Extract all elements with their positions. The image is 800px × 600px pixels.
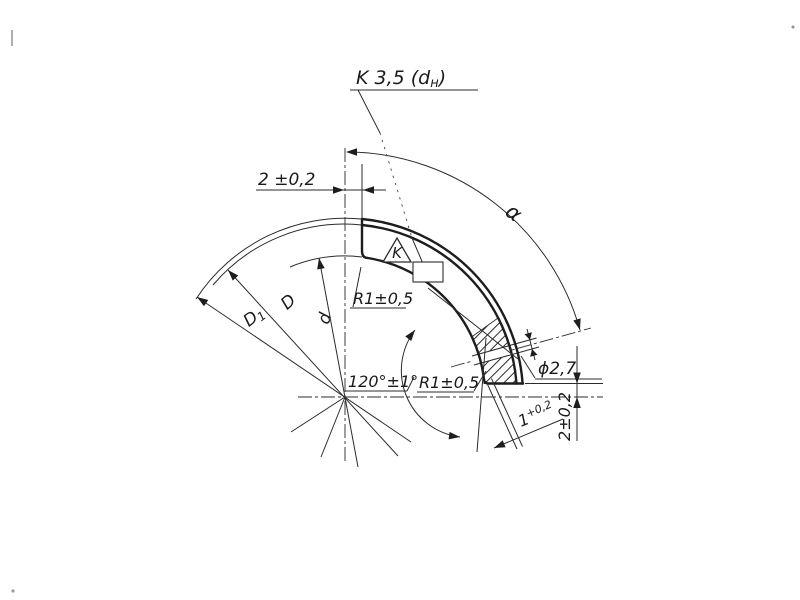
inner-surface-extension-arc xyxy=(290,256,362,267)
coating-leader xyxy=(358,90,380,133)
dimension-arrowhead xyxy=(449,432,460,440)
dimension-arrowhead xyxy=(346,148,357,156)
dimension-arrowhead xyxy=(197,297,208,306)
dimension-arrowhead xyxy=(573,397,581,408)
label-radius-bottom: R1±0,5 xyxy=(419,373,479,392)
label-gap-top: 2 ±0,2 xyxy=(258,170,316,190)
dimension-arrowhead xyxy=(405,330,415,341)
angle-side-line xyxy=(428,288,518,359)
dimension-arrowhead xyxy=(317,258,324,269)
drawing-sheet: K K 3,5 (dн) 2 ±0,2 α D D1 d R1±0,5 120°… xyxy=(0,0,800,600)
scan-mark xyxy=(11,589,14,592)
center-construction-tail-2 xyxy=(321,397,345,457)
label-alpha: α xyxy=(501,199,527,227)
dimension-line-D1 xyxy=(197,297,411,442)
dimension-arrowhead xyxy=(573,318,580,330)
scan-artifacts xyxy=(11,26,794,593)
mark-symbol: K xyxy=(392,244,403,262)
scan-mark xyxy=(792,26,795,29)
extension-arcs xyxy=(196,218,362,299)
dimension-arrowhead xyxy=(525,332,532,340)
bridge-extension-line xyxy=(486,381,517,449)
label-free-diameter: D1 xyxy=(240,303,269,332)
label-coating-spec: K 3,5 (dн) xyxy=(356,67,446,91)
label-outer-diameter: D xyxy=(277,290,300,314)
dimension-arrowhead xyxy=(494,440,506,448)
leaders xyxy=(345,90,602,392)
dimension-arrowhead xyxy=(363,186,374,194)
dimension-arrowhead xyxy=(530,349,537,357)
label-hole-diameter: ϕ2,7 xyxy=(538,359,576,379)
label-bridge-width: 1+0,2 xyxy=(515,398,557,431)
marking-symbols: K xyxy=(383,238,443,282)
center-construction-tail xyxy=(291,397,345,432)
label-radius-top: R1±0,5 xyxy=(353,289,413,308)
marking-area-box xyxy=(413,262,443,282)
outer-surface-extension-arc xyxy=(196,218,362,299)
bridge-tolerance: +0,2 xyxy=(524,398,554,420)
coating-pre: K 3,5 (d xyxy=(356,67,431,89)
coating-post: ) xyxy=(437,67,446,89)
dimension-arrowhead xyxy=(333,186,344,194)
labels: K 3,5 (dн) 2 ±0,2 α D D1 d R1±0,5 120°±1… xyxy=(240,67,577,441)
label-end-gap: 2±0,2 xyxy=(555,392,574,441)
label-inner-diameter: d xyxy=(314,310,336,326)
label-angle: 120°±1° xyxy=(348,372,418,391)
hatch-section xyxy=(472,318,539,384)
hole-dia-leader xyxy=(521,356,535,378)
technical-drawing: K K 3,5 (dн) 2 ±0,2 α D D1 d R1±0,5 120°… xyxy=(0,0,800,600)
